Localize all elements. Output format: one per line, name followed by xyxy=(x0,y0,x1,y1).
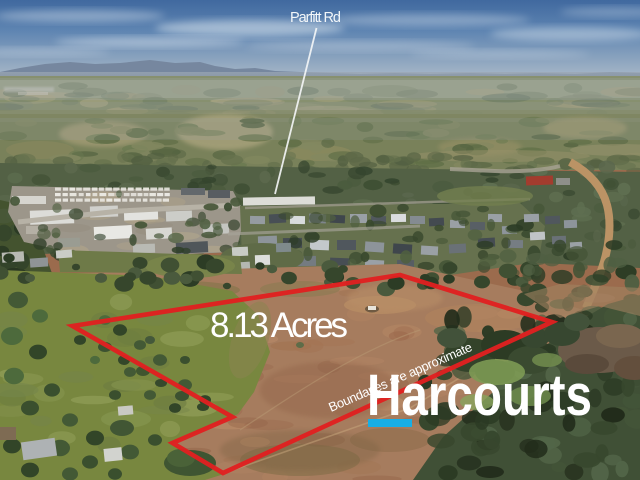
svg-text:8.13 Acres: 8.13 Acres xyxy=(210,306,348,345)
svg-text:Harcourts: Harcourts xyxy=(367,363,592,428)
svg-text:Parfitt Rd: Parfitt Rd xyxy=(290,10,341,26)
